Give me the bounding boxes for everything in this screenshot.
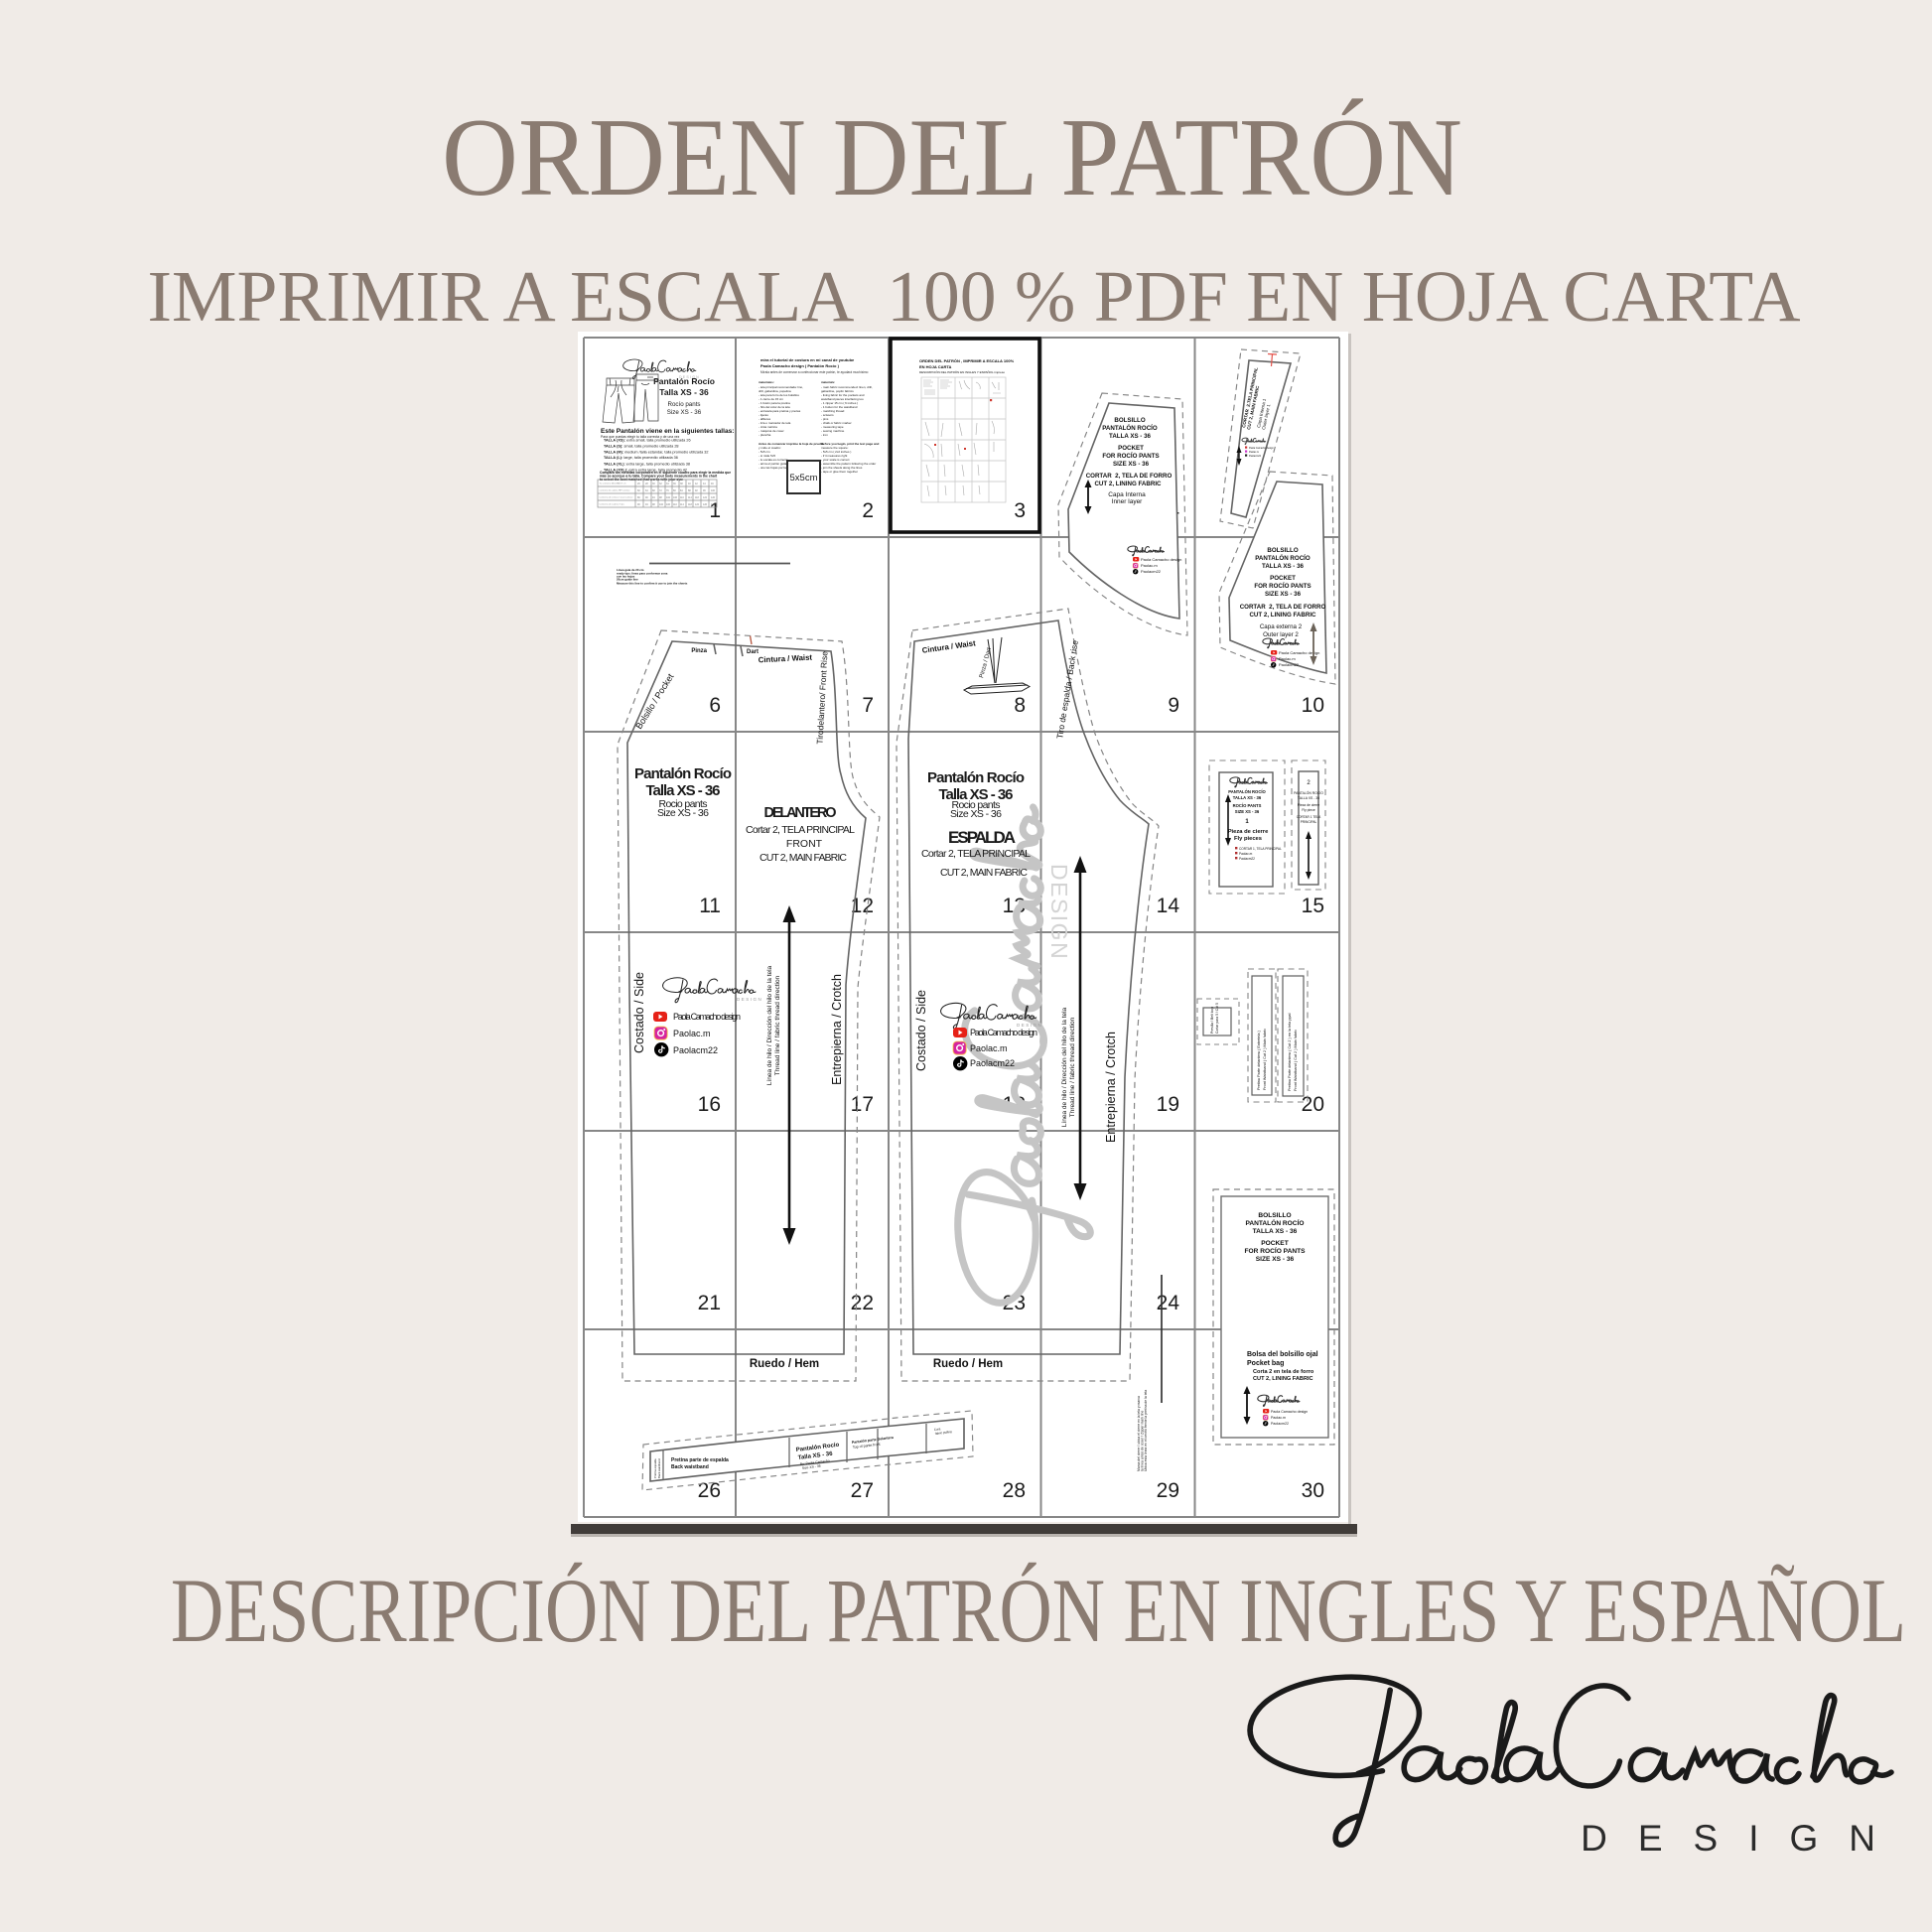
svg-text:30: 30 <box>1302 1479 1324 1502</box>
svg-text:2: 2 <box>862 499 874 522</box>
svg-text:Outer layer 2: Outer layer 2 <box>1263 631 1299 638</box>
svg-text:6: 6 <box>709 694 721 717</box>
svg-text:Pantalón Rocío: Pantalón Rocío <box>634 765 732 782</box>
svg-text:SIZE XS - 36: SIZE XS - 36 <box>1235 809 1260 814</box>
svg-text:EN HOJA CARTA: EN HOJA CARTA <box>919 364 952 369</box>
svg-text:Paolacm22: Paolacm22 <box>1239 857 1255 861</box>
svg-text:Paolac.m: Paolac.m <box>673 1029 711 1038</box>
svg-text:IMPRIMIR A ESCALA 100 % PDF E: IMPRIMIR A ESCALA 100 % PDF EN HOJA CART… <box>148 256 1801 337</box>
svg-text:Inner layer: Inner layer <box>1112 498 1144 505</box>
svg-text:TALLA (S): small, talla promed: TALLA (S): small, talla promedio utiliza… <box>604 444 679 448</box>
svg-text:Capa Interna: Capa Interna <box>1108 491 1146 498</box>
svg-text:mira el tutorial de costura en: mira el tutorial de costura en mi canal … <box>760 357 855 362</box>
svg-text:17: 17 <box>851 1093 874 1116</box>
svg-text:102: 102 <box>666 496 671 499</box>
svg-text:Paola Camacho design ( Pantaló: Paola Camacho design ( Pantalón Rocío ) <box>760 363 840 368</box>
svg-text:5x5cm: 5x5cm <box>790 473 818 483</box>
svg-text:118: 118 <box>695 496 699 499</box>
svg-text:Ruedo / Hem: Ruedo / Hem <box>750 1358 819 1370</box>
svg-text:Paola Camacho design: Paola Camacho design <box>673 1012 741 1022</box>
svg-text:Paolac.m: Paolac.m <box>1249 451 1259 454</box>
svg-text:CUT 2, MAIN FABRIC: CUT 2, MAIN FABRIC <box>759 852 847 864</box>
svg-text:CUT 2, LINING FABRIC: CUT 2, LINING FABRIC <box>1249 612 1316 619</box>
svg-text:Paolacm22: Paolacm22 <box>1279 662 1300 667</box>
svg-text:Thread line / fabric thread di: Thread line / fabric thread direction <box>774 975 781 1075</box>
svg-text:29: 29 <box>1157 1479 1179 1502</box>
svg-text:Paolacm22: Paolacm22 <box>1249 455 1262 458</box>
svg-text:Pantalón Rocío: Pantalón Rocío <box>927 769 1025 786</box>
svg-text:Capa externa 2: Capa externa 2 <box>1260 623 1303 630</box>
svg-text:Dart: Dart <box>747 649 759 655</box>
svg-text:110: 110 <box>673 503 677 506</box>
svg-text:TALLA (L): large, talla promed: TALLA (L): large, talla promedio utiliza… <box>604 456 678 460</box>
svg-text:Rocío pants: Rocío pants <box>667 401 700 408</box>
svg-text:SIZE XS - 36: SIZE XS - 36 <box>1113 461 1150 468</box>
svg-text:Paolacm22: Paolacm22 <box>1141 569 1162 574</box>
svg-text:Cortar 2, TELA PRINCIPAL: Cortar 2, TELA PRINCIPAL <box>746 824 855 836</box>
svg-text:Cortar 2, TELA PRINCIPAL: Cortar 2, TELA PRINCIPAL <box>921 848 1031 860</box>
svg-text:Entrepierna / Crotch: Entrepierna / Crotch <box>830 974 844 1085</box>
svg-text:Paolacm22: Paolacm22 <box>970 1058 1015 1068</box>
svg-text:110: 110 <box>680 496 684 499</box>
svg-text:DESIGN: DESIGN <box>1046 864 1072 960</box>
svg-text:FRONT: FRONT <box>786 838 823 850</box>
svg-text:Tu contorno (90) WAIST cm: Tu contorno (90) WAIST cm <box>600 483 626 485</box>
svg-text:28: 28 <box>1003 1479 1026 1502</box>
svg-text:Size XS - 36: Size XS - 36 <box>950 808 1002 820</box>
svg-text:materials:: materials: <box>821 380 835 384</box>
svg-text:Contorno de cintura / waist co: Contorno de cintura / waist contour <box>600 496 633 499</box>
svg-text:TALLA XS - 36: TALLA XS - 36 <box>1253 1228 1298 1235</box>
svg-text:- iron: - iron <box>821 433 828 437</box>
svg-text:Contorno de cadera / hips: Contorno de cadera / hips <box>600 503 625 506</box>
svg-text:FOR ROCÍO PANTS: FOR ROCÍO PANTS <box>1244 1246 1306 1255</box>
svg-text:Back waistband: Back waistband <box>657 1458 661 1478</box>
svg-text:Entrepierna / Crotch: Entrepierna / Crotch <box>1104 1032 1118 1143</box>
svg-text:CORTAR 2, TELA DE FORRO: CORTAR 2, TELA DE FORRO <box>1086 473 1173 480</box>
svg-text:BOLSILLO: BOLSILLO <box>1258 1212 1291 1219</box>
svg-text:16: 16 <box>698 1093 721 1116</box>
svg-text:DESIGN: DESIGN <box>1581 1818 1906 1859</box>
svg-text:TALLA (M): medium /talla estan: TALLA (M): medium /talla estandar, talla… <box>604 450 709 454</box>
svg-text:3: 3 <box>1014 499 1026 522</box>
svg-text:Línea de hilo / Dirección del: Línea de hilo / Dirección del hilo de la… <box>1061 1007 1068 1127</box>
svg-text:PANTALÓN ROCÍO: PANTALÓN ROCÍO <box>1245 1218 1304 1227</box>
svg-text:122: 122 <box>695 503 700 506</box>
svg-text:9: 9 <box>1168 694 1179 717</box>
svg-text:Bolsa del bolsillo ojal: Bolsa del bolsillo ojal <box>1247 1351 1318 1358</box>
svg-text:ESPALDA: ESPALDA <box>948 828 1016 847</box>
svg-text:Paolac.m: Paolac.m <box>1239 852 1253 856</box>
svg-text:SIZE XS - 36: SIZE XS - 36 <box>1265 591 1302 598</box>
svg-text:100: 100 <box>711 489 716 492</box>
svg-text:7: 7 <box>862 694 874 717</box>
svg-text:Paolacm22: Paolacm22 <box>1271 1422 1289 1426</box>
svg-text:Size XS - 36: Size XS - 36 <box>667 409 702 416</box>
svg-text:POCKET: POCKET <box>1118 445 1144 452</box>
svg-text:DESIGN: DESIGN <box>737 997 762 1002</box>
svg-text:DELANTERO: DELANTERO <box>764 805 837 821</box>
svg-text:materiales:: materiales: <box>759 380 774 384</box>
svg-text:TALLA XS - 36: TALLA XS - 36 <box>1298 796 1319 800</box>
svg-text:Pieza de cierre: Pieza de cierre <box>1228 829 1269 835</box>
svg-text:Measure this line to confirm i: Measure this line to confirm it use to j… <box>617 581 688 585</box>
svg-text:TALLA XS - 36: TALLA XS - 36 <box>1262 563 1304 570</box>
svg-text:PANTALÓN ROCÍO: PANTALÓN ROCÍO <box>1228 789 1266 794</box>
svg-text:TALLA (XS): extra small, talla: TALLA (XS): extra small, talla promedio … <box>604 439 691 443</box>
svg-text:Presilla / Belt loop: Presilla / Belt loop <box>1210 1007 1214 1034</box>
svg-text:Paolac.m: Paolac.m <box>1141 563 1158 568</box>
svg-text:- plancha: - plancha <box>759 433 771 437</box>
svg-text:20: 20 <box>1302 1093 1324 1116</box>
svg-text:BOLSILLO: BOLSILLO <box>1114 417 1145 424</box>
svg-text:Paolac.m: Paolac.m <box>970 1043 1008 1053</box>
svg-text:Pretina Parte delantera ( Cut: Pretina Parte delantera ( Cut 2 ) en la … <box>1288 1013 1292 1091</box>
svg-text:TALLA XS - 36: TALLA XS - 36 <box>1233 795 1262 800</box>
svg-text:10: 10 <box>1302 694 1324 717</box>
svg-text:15: 15 <box>1302 895 1324 917</box>
svg-text:21: 21 <box>698 1292 721 1314</box>
svg-text:24: 24 <box>1157 1292 1180 1314</box>
svg-text:Paola Camacho design: Paola Camacho design <box>1249 447 1274 450</box>
svg-text:Front Waistband ( Cut 2 ) Main: Front Waistband ( Cut 2 ) Main fabric <box>1294 1030 1298 1091</box>
svg-text:ORDEN DEL PATRÓN: ORDEN DEL PATRÓN <box>442 96 1462 219</box>
svg-text:27: 27 <box>851 1479 874 1502</box>
svg-text:Pretina parte de espalda: Pretina parte de espalda <box>671 1457 729 1463</box>
svg-text:Pinza: Pinza <box>691 648 707 654</box>
svg-text:SIZE XS - 36: SIZE XS - 36 <box>1256 1256 1295 1263</box>
svg-text:TALLA XS - 36: TALLA XS - 36 <box>1109 433 1151 440</box>
svg-text:Mírala antes de comenzar a con: Mírala antes de comenzar a confeccionar … <box>760 370 869 374</box>
svg-text:Fly piece: Fly piece <box>1302 808 1315 812</box>
svg-text:TALLA (XL): extra large, talla: TALLA (XL): extra large, talla promedio … <box>604 462 690 466</box>
svg-text:118: 118 <box>688 503 692 506</box>
svg-text:Este Pantalón viene en la sigu: Este Pantalón viene en la siguientes tal… <box>601 428 735 435</box>
svg-text:contorno de cadera HIP contour: contorno de cadera HIP contour <box>600 489 630 492</box>
svg-text:Thread line / fabric thread di: Thread line / fabric thread direction <box>1069 1017 1076 1117</box>
svg-text:CUT 2, LINING FABRIC: CUT 2, LINING FABRIC <box>1253 1376 1313 1382</box>
svg-text:114: 114 <box>688 496 692 499</box>
svg-text:Paolacm22: Paolacm22 <box>673 1045 718 1055</box>
svg-text:PRINCIPAL: PRINCIPAL <box>1301 820 1317 824</box>
svg-text:CUT 2, LINING FABRIC: CUT 2, LINING FABRIC <box>1094 481 1162 487</box>
svg-text:FOR ROCÍO PANTS: FOR ROCÍO PANTS <box>1102 452 1159 460</box>
svg-text:114: 114 <box>680 503 684 506</box>
svg-text:14: 14 <box>1157 895 1180 917</box>
svg-text:19: 19 <box>1157 1093 1179 1116</box>
svg-text:PANTALÓN ROCÍO: PANTALÓN ROCÍO <box>1294 790 1323 795</box>
svg-text:DESCRIPCIÓN DEL PATRÓN EN INGL: DESCRIPCIÓN DEL PATRÓN EN INGLES Y ESPAÑ… <box>171 1560 1906 1661</box>
svg-text:CUT 2, MAIN FABRIC: CUT 2, MAIN FABRIC <box>940 867 1028 879</box>
svg-text:Corta 2 en tela de forro: Corta 2 en tela de forro <box>1253 1369 1314 1375</box>
svg-text:Costado / Side: Costado / Side <box>632 972 646 1053</box>
svg-text:Front Waistband ( Cut 2 ) Main: Front Waistband ( Cut 2 ) Main fabric <box>1263 1029 1267 1090</box>
svg-text:22: 22 <box>851 1292 874 1314</box>
svg-text:PANTALÓN ROCÍO: PANTALÓN ROCÍO <box>1102 424 1158 432</box>
svg-text:DESCRIPCIÓN DEL PATRÓN EN INGL: DESCRIPCIÓN DEL PATRÓN EN INGLES Y ESPAÑ… <box>919 369 1005 374</box>
svg-text:Talla XS - 36: Talla XS - 36 <box>659 387 709 397</box>
svg-text:Paolac.m: Paolac.m <box>1279 656 1296 661</box>
svg-text:Paola Camacho design: Paola Camacho design <box>1141 557 1181 562</box>
svg-text:BOLSILLO: BOLSILLO <box>1267 547 1298 554</box>
svg-text:ORDEN DEL PATRÓN , IMPRIMIR A: ORDEN DEL PATRÓN , IMPRIMIR A ESCALA 100… <box>919 358 1015 363</box>
svg-text:POCKET: POCKET <box>1261 1240 1288 1247</box>
svg-text:- tape or glue them together: - tape or glue them together <box>821 470 858 474</box>
svg-text:Paola Camacho design: Paola Camacho design <box>1271 1410 1308 1414</box>
svg-text:130: 130 <box>711 503 716 506</box>
svg-text:Back waistband: Back waistband <box>671 1464 709 1470</box>
svg-text:Línea de hilo / Dirección del: Línea de hilo / Dirección del hilo de la… <box>766 965 773 1085</box>
svg-text:CORTAR 2, TELA DE FORRO: CORTAR 2, TELA DE FORRO <box>1240 604 1326 611</box>
svg-text:Ubica esta línea en el centro: Ubica esta línea en el centro frente la … <box>1144 1390 1148 1471</box>
svg-text:Talla XS - 36: Talla XS - 36 <box>646 782 721 799</box>
svg-text:Cortar para 5 / Cut 5: Cortar para 5 / Cut 5 <box>1215 1003 1219 1034</box>
svg-text:8: 8 <box>1014 694 1026 717</box>
svg-text:11: 11 <box>699 895 721 917</box>
svg-text:Ruedo / Hem: Ruedo / Hem <box>933 1358 1003 1370</box>
svg-text:ROCÍO PANTS: ROCÍO PANTS <box>1233 803 1262 808</box>
svg-text:Pantalón Rocío: Pantalón Rocío <box>653 376 715 386</box>
svg-text:FOR ROCÍO PANTS: FOR ROCÍO PANTS <box>1254 582 1311 590</box>
svg-text:Costado / Side: Costado / Side <box>914 990 928 1071</box>
svg-text:POCKET: POCKET <box>1270 575 1296 582</box>
svg-text:Fly pieces: Fly pieces <box>1234 836 1262 842</box>
svg-text:102: 102 <box>659 503 664 506</box>
svg-text:CORTAR 1, TELA PRINCIPAL: CORTAR 1, TELA PRINCIPAL <box>1239 847 1282 851</box>
svg-text:126: 126 <box>711 496 716 499</box>
svg-text:PANTALÓN ROCÍO: PANTALÓN ROCÍO <box>1255 554 1311 562</box>
svg-text:122: 122 <box>703 496 708 499</box>
svg-text:Paolac.m: Paolac.m <box>1271 1416 1286 1420</box>
svg-text:Pocket bag: Pocket bag <box>1247 1360 1284 1367</box>
svg-text:Pretina Parte delantera ( Entr: Pretina Parte delantera ( Entretela ) <box>1257 1030 1261 1090</box>
svg-text:Size XS - 36: Size XS - 36 <box>657 807 709 819</box>
svg-text:Paola Camacho design: Paola Camacho design <box>970 1028 1037 1037</box>
svg-text:106: 106 <box>666 503 671 506</box>
svg-text:CORTAR 1 TELA: CORTAR 1 TELA <box>1297 815 1321 819</box>
svg-text:Pieza de cierre: Pieza de cierre <box>1298 803 1320 807</box>
svg-text:106: 106 <box>673 496 678 499</box>
svg-text:126: 126 <box>703 503 708 506</box>
